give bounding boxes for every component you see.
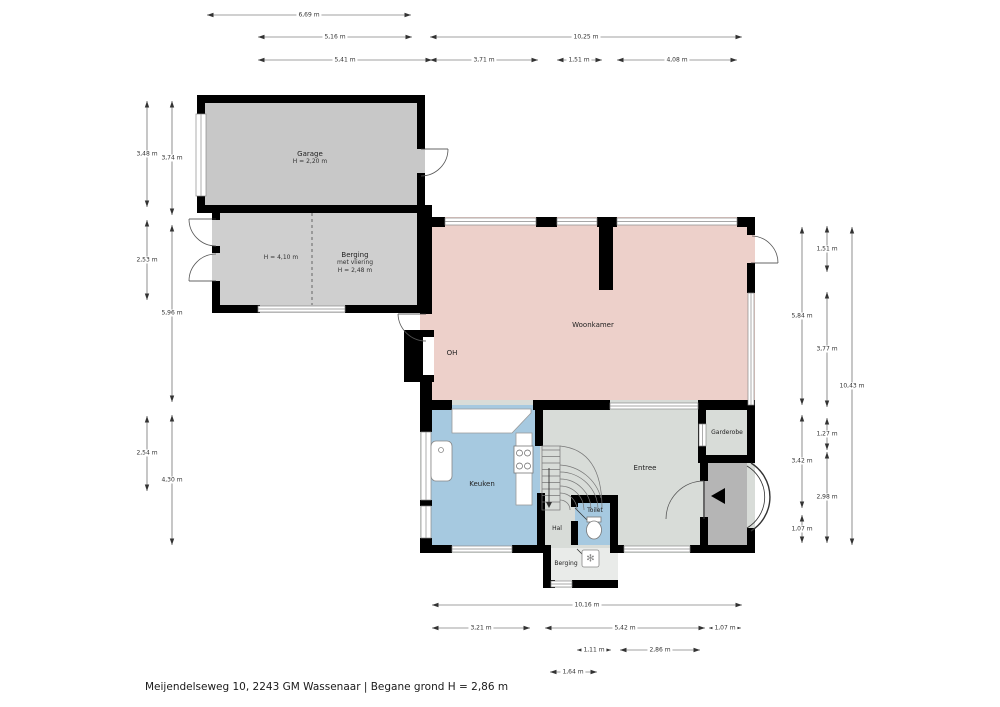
dimension-label: 10,16 m [573,602,602,609]
room-label-garderobe: Garderobe [711,429,743,437]
berging-note: met vliering [337,259,373,267]
room-label-hal: Hal [552,525,562,533]
dimension-label: 4,30 m [159,477,184,484]
room-label-entree: Entree [634,464,657,472]
floorplan: 6,69 m 5,16 m 10,25 m 5,41 m 3,71 m 1,51… [0,0,1000,707]
toilet-icon [587,517,602,539]
dimension-label: 5,41 m [332,57,357,64]
dimension-label: 4,08 m [664,57,689,64]
dimension-label: 3,21 m [468,625,493,632]
dimension-label: 3,42 m [789,458,814,465]
garage-height: H = 2,20 m [293,158,327,166]
dimension-label: 2,53 m [134,257,159,264]
garage-door-swing [421,149,448,176]
sink-icon [431,441,452,481]
room-fills [197,95,755,588]
dimension-label: 3,71 m [471,57,496,64]
berging-door-swing-2 [189,254,216,281]
room-label-woonkamer: Woonkamer [572,321,614,329]
dimension-label: 10,43 m [838,383,867,390]
plan-caption: Meijendelseweg 10, 2243 GM Wassenaar | B… [145,681,508,693]
berging-height: H = 2,48 m [337,267,373,275]
dimension-label: 3,74 m [159,155,184,162]
dimension-label: 5,16 m [322,34,347,41]
dimension-label: 1,07 m [789,526,814,533]
stove-icon [514,446,533,473]
dimension-label: 5,96 m [159,310,184,317]
fireplace-hearth [423,337,434,375]
woonkamer-right-door-swing [751,236,778,263]
dimension-label: 1,64 m [560,669,585,676]
dimension-label: 5,42 m [612,625,637,632]
dimension-label: 1,07 m [712,625,737,632]
dimension-label: 1,11 m [581,647,606,654]
dimension-label: 2,98 m [814,494,839,501]
dimension-label: 3,77 m [814,346,839,353]
berging-name: Berging [337,251,373,259]
zone-height-label: H = 4,10 m [264,254,298,262]
dimension-label: 1,51 m [814,246,839,253]
dimension-label: 2,54 m [134,450,159,457]
ventilation-icon: ✻ [586,554,594,565]
room-label-berging-klein: Berging [554,560,577,568]
room-label-keuken: Keuken [469,480,495,488]
dimension-label: 1,51 m [566,57,591,64]
garage-name: Garage [293,150,327,158]
berging-door-swing-1 [189,219,216,246]
dimension-label: 5,84 m [789,313,814,320]
dimension-label: 3,48 m [134,151,159,158]
dimension-label: 1,27 m [814,431,839,438]
room-woonkamer-fill [420,217,755,408]
dimension-label: 10,25 m [572,34,601,41]
fireplace-label: OH [447,349,458,357]
dimension-label: 6,69 m [296,12,321,19]
dimension-label: 2,86 m [647,647,672,654]
room-label-garage: Garage H = 2,20 m [293,150,327,166]
room-berging-fill [212,205,425,313]
floorplan-drawing [0,0,1000,707]
room-label-berging: Berging met vliering H = 2,48 m [337,251,373,275]
room-label-toilet: Toilet [587,507,603,515]
